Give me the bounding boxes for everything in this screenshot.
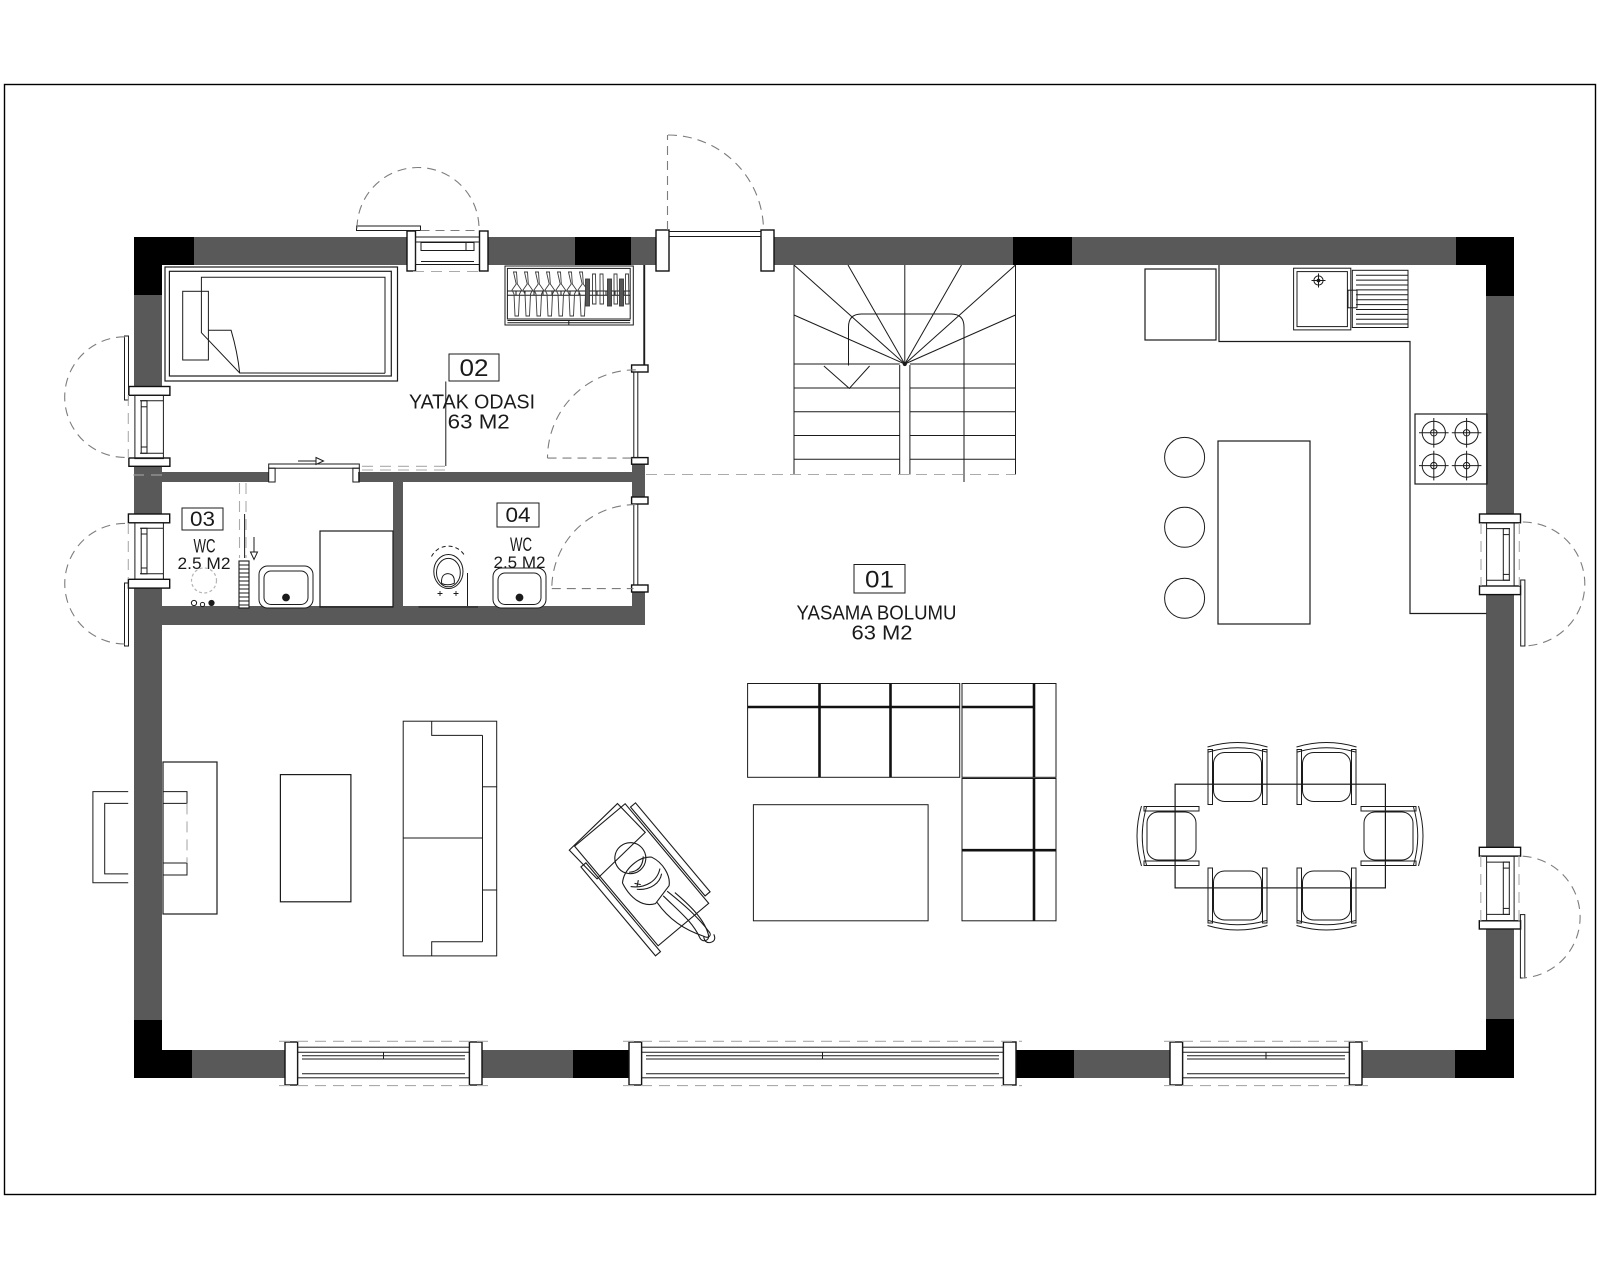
svg-text:01: 01 xyxy=(865,567,894,594)
svg-text:YATAK ODASI: YATAK ODASI xyxy=(409,392,535,414)
svg-text:63 M2: 63 M2 xyxy=(852,623,913,645)
svg-text:YASAMA BOLUMU: YASAMA BOLUMU xyxy=(797,603,957,625)
svg-text:63 M2: 63 M2 xyxy=(448,412,510,434)
svg-text:02: 02 xyxy=(460,355,489,382)
svg-text:03: 03 xyxy=(190,508,215,531)
svg-text:04: 04 xyxy=(506,504,531,527)
svg-text:2.5 M2: 2.5 M2 xyxy=(178,554,231,573)
